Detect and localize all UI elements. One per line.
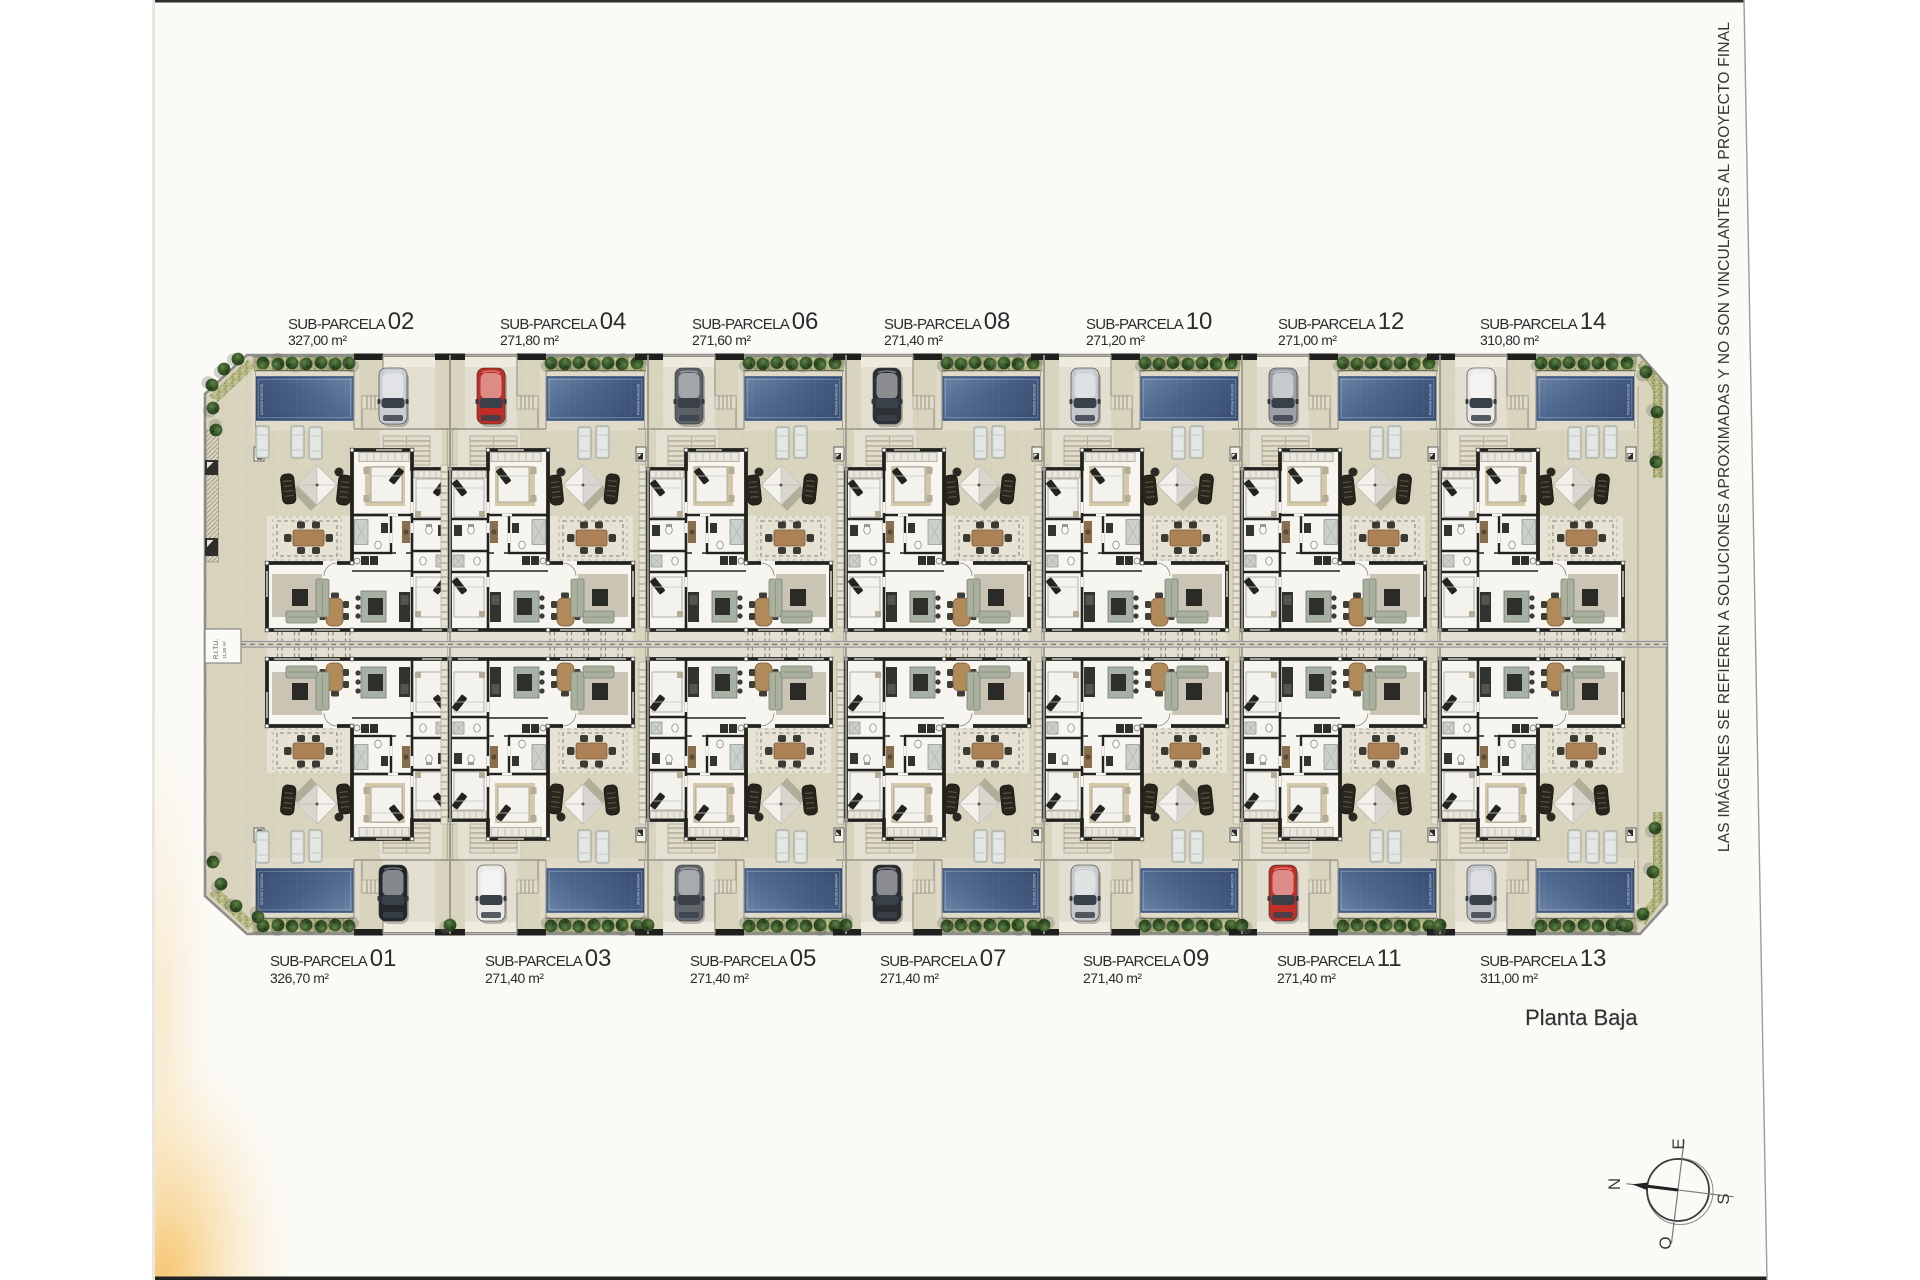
svg-text:LAS IMÁGENES SE REFIEREN A SOL: LAS IMÁGENES SE REFIEREN A SOLUCIONES AP…	[1716, 22, 1733, 852]
svg-text:271,40 m²: 271,40 m²	[485, 970, 544, 986]
svg-text:E: E	[1669, 1138, 1688, 1149]
svg-text:O: O	[1656, 1236, 1675, 1249]
svg-text:271,40 m²: 271,40 m²	[690, 970, 749, 986]
svg-text:271,40 m²: 271,40 m²	[884, 332, 943, 348]
svg-text:271,40 m²: 271,40 m²	[1083, 970, 1142, 986]
svg-text:271,40 m²: 271,40 m²	[1277, 970, 1336, 986]
svg-text:271,80 m²: 271,80 m²	[500, 332, 559, 348]
svg-text:11,30 m²: 11,30 m²	[222, 641, 227, 659]
svg-text:326,70 m²: 326,70 m²	[270, 970, 329, 986]
svg-text:311,00 m²: 311,00 m²	[1480, 970, 1538, 986]
svg-text:310,80 m²: 310,80 m²	[1480, 332, 1539, 348]
svg-text:271,60 m²: 271,60 m²	[692, 332, 751, 348]
svg-text:N: N	[1605, 1178, 1624, 1190]
svg-text:S: S	[1714, 1193, 1733, 1204]
svg-text:271,20 m²: 271,20 m²	[1086, 332, 1145, 348]
svg-text:R.I.T.U.: R.I.T.U.	[214, 639, 220, 659]
svg-text:271,40 m²: 271,40 m²	[880, 970, 939, 986]
svg-text:Planta Baja: Planta Baja	[1525, 1005, 1638, 1030]
svg-text:271,00 m²: 271,00 m²	[1278, 332, 1337, 348]
svg-text:327,00 m²: 327,00 m²	[288, 332, 347, 348]
